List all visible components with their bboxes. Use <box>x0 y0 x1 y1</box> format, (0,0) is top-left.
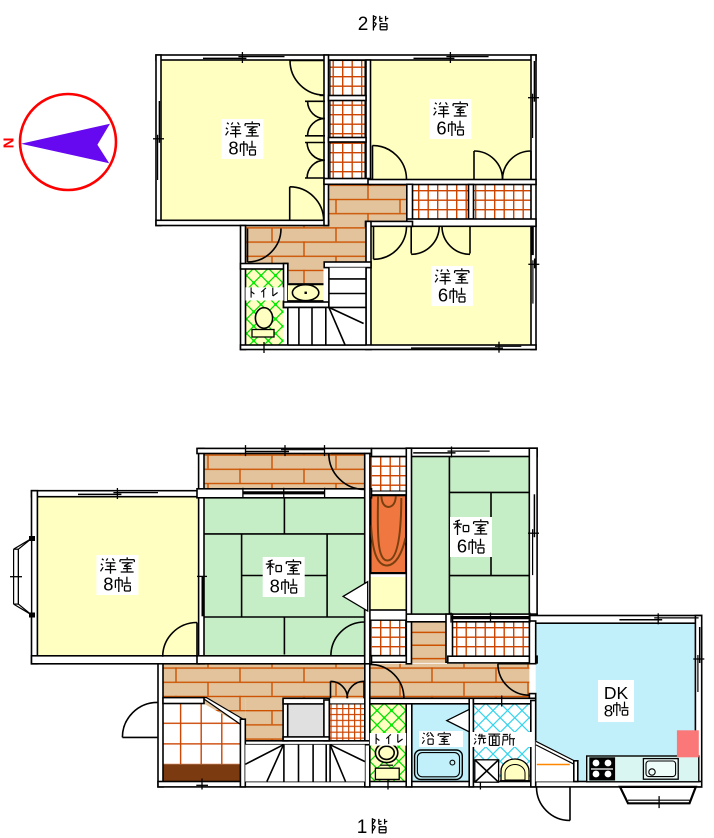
svg-text:1: 1 <box>357 817 368 838</box>
svg-text:N: N <box>1 138 18 149</box>
svg-text:DK: DK <box>604 683 629 703</box>
svg-text:8: 8 <box>103 574 113 595</box>
svg-text:8: 8 <box>604 702 613 721</box>
svg-text:6: 6 <box>436 118 446 139</box>
svg-text:2: 2 <box>358 14 369 35</box>
svg-text:6: 6 <box>457 536 467 557</box>
svg-text:8: 8 <box>228 138 238 159</box>
svg-text:8: 8 <box>270 576 280 597</box>
svg-text:6: 6 <box>438 285 448 306</box>
